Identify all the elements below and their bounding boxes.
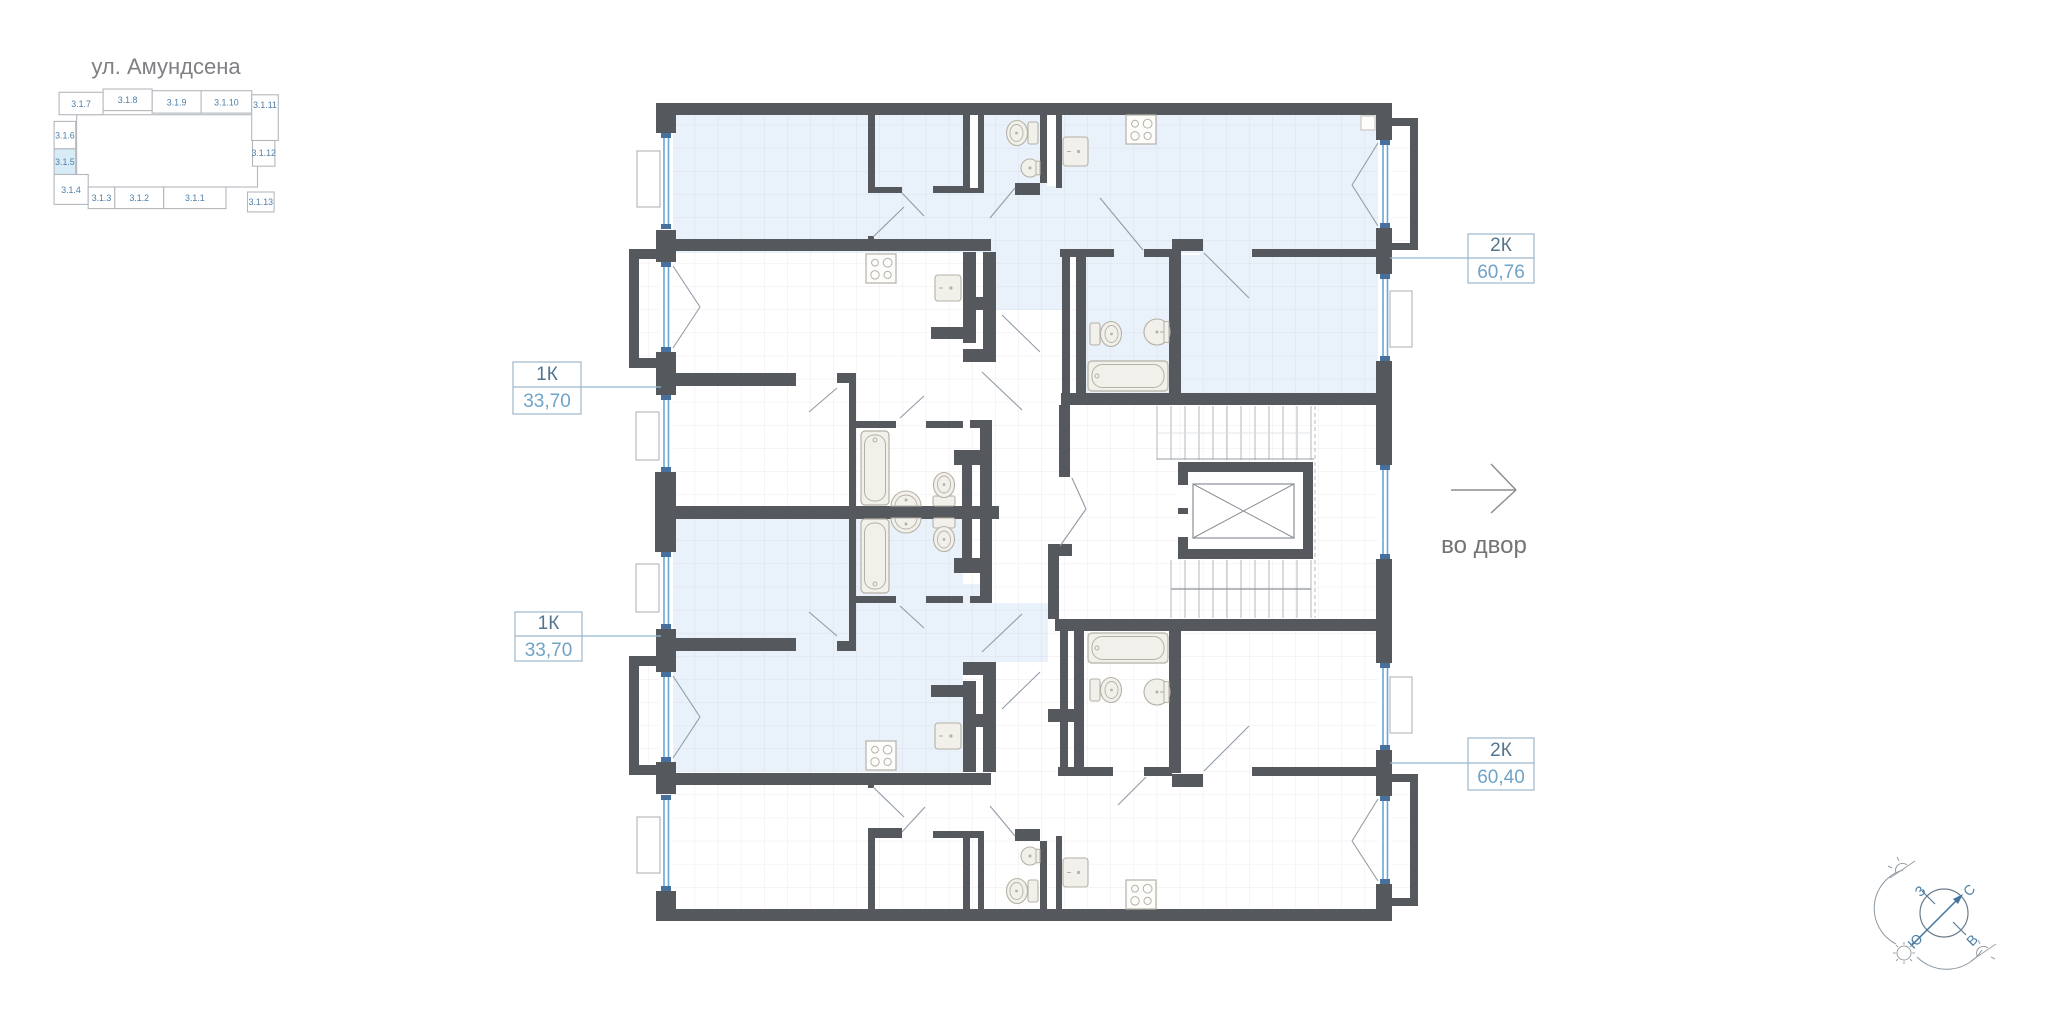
svg-text:3.1.11: 3.1.11 bbox=[253, 100, 277, 110]
svg-text:3.1.10: 3.1.10 bbox=[214, 97, 239, 107]
svg-text:3.1.8: 3.1.8 bbox=[118, 95, 138, 105]
svg-text:ул. Амундсена: ул. Амундсена bbox=[91, 54, 241, 79]
svg-text:60,40: 60,40 bbox=[1477, 767, 1525, 788]
svg-text:1К: 1К bbox=[536, 364, 558, 385]
svg-text:1К: 1К bbox=[538, 613, 560, 634]
svg-text:3.1.1: 3.1.1 bbox=[185, 193, 205, 203]
svg-text:во двор: во двор bbox=[1441, 532, 1527, 559]
svg-text:3.1.2: 3.1.2 bbox=[129, 193, 149, 203]
svg-text:33,70: 33,70 bbox=[523, 391, 571, 412]
svg-text:3.1.3: 3.1.3 bbox=[92, 193, 112, 203]
svg-text:3.1.6: 3.1.6 bbox=[55, 131, 75, 141]
svg-text:3.1.13: 3.1.13 bbox=[249, 197, 274, 207]
svg-text:60,76: 60,76 bbox=[1477, 262, 1525, 283]
svg-text:3.1.5: 3.1.5 bbox=[55, 157, 75, 167]
svg-text:3.1.9: 3.1.9 bbox=[167, 97, 187, 107]
svg-text:3.1.12: 3.1.12 bbox=[251, 148, 276, 158]
svg-text:33,70: 33,70 bbox=[525, 640, 573, 661]
svg-text:2К: 2К bbox=[1490, 740, 1512, 761]
svg-text:3.1.4: 3.1.4 bbox=[61, 185, 81, 195]
svg-text:2К: 2К bbox=[1490, 235, 1512, 256]
svg-text:3.1.7: 3.1.7 bbox=[71, 99, 91, 109]
